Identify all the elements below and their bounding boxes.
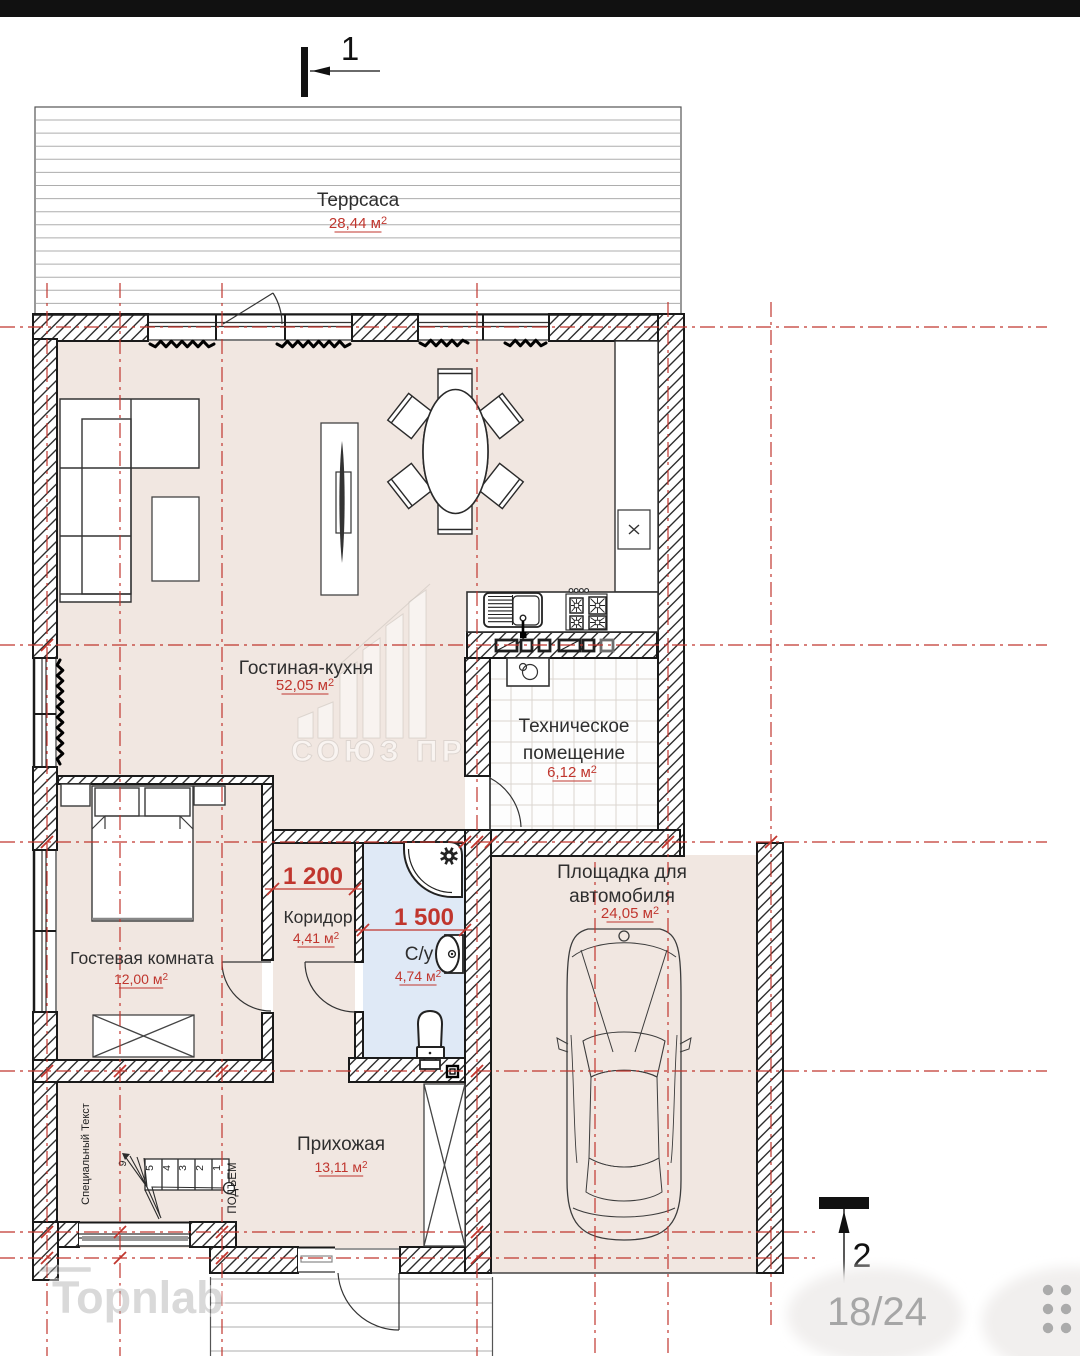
svg-text:Прихожая: Прихожая <box>297 1134 385 1155</box>
svg-text:2: 2 <box>194 1165 206 1171</box>
svg-text:1 500: 1 500 <box>394 904 454 931</box>
svg-text:3: 3 <box>177 1165 189 1171</box>
svg-text:4,41 м2: 4,41 м2 <box>293 930 340 946</box>
svg-text:Техническое: Техническое <box>519 716 630 737</box>
svg-text:18/24: 18/24 <box>827 1290 927 1334</box>
svg-text:ПОДЪЕМ: ПОДЪЕМ <box>227 1162 239 1213</box>
svg-text:4,74 м2: 4,74 м2 <box>395 968 442 984</box>
svg-text:помещение: помещение <box>523 743 625 764</box>
svg-text:28,44 м2: 28,44 м2 <box>329 215 387 232</box>
svg-text:1: 1 <box>211 1165 223 1171</box>
svg-text:С/у: С/у <box>405 944 434 965</box>
svg-text:Коридор: Коридор <box>283 907 352 927</box>
svg-text:Специальный Текст: Специальный Текст <box>80 1103 92 1205</box>
svg-text:1: 1 <box>341 30 359 67</box>
svg-text:5: 5 <box>144 1165 156 1171</box>
svg-text:автомобиля: автомобиля <box>569 886 675 907</box>
svg-text:24,05 м2: 24,05 м2 <box>601 905 659 922</box>
svg-text:6,12 м2: 6,12 м2 <box>547 764 597 781</box>
svg-text:1 200: 1 200 <box>283 863 343 890</box>
svg-text:13,11 м2: 13,11 м2 <box>314 1159 368 1175</box>
svg-text:Террсаса: Террсаса <box>317 190 400 211</box>
svg-text:Площадка для: Площадка для <box>557 862 687 883</box>
svg-text:52,05 м2: 52,05 м2 <box>276 677 334 694</box>
svg-text:4: 4 <box>161 1165 173 1171</box>
svg-text:Гостевая комната: Гостевая комната <box>70 948 214 968</box>
svg-text:12,00 м2: 12,00 м2 <box>114 971 169 987</box>
svg-text:Гостиная-кухня: Гостиная-кухня <box>239 658 373 679</box>
svg-text:Topnlab: Topnlab <box>52 1272 224 1323</box>
